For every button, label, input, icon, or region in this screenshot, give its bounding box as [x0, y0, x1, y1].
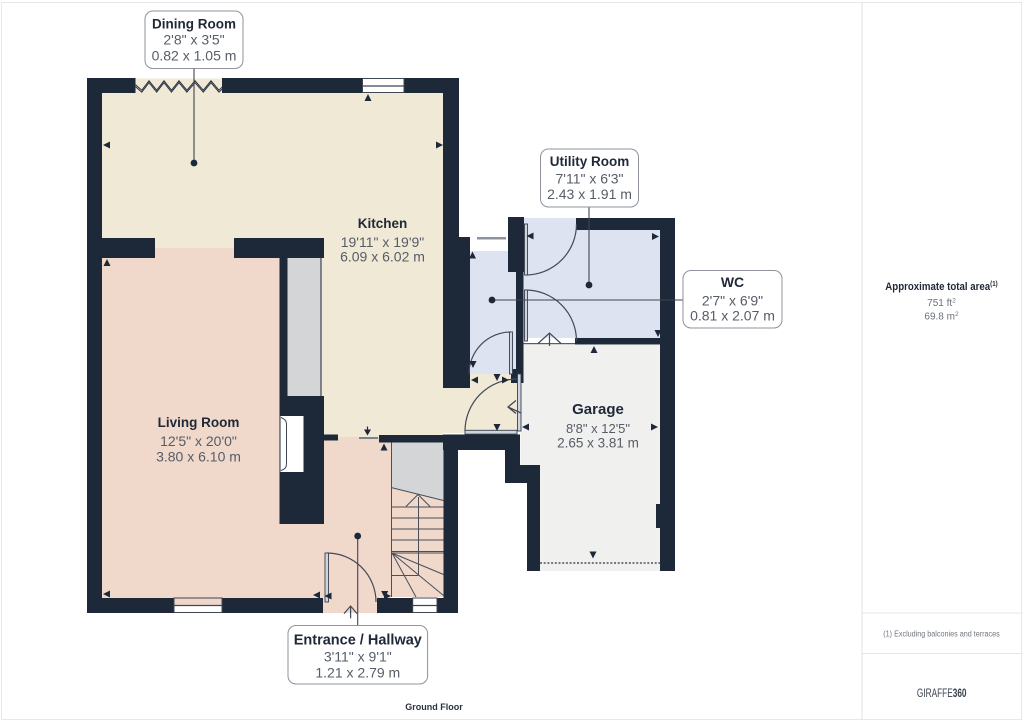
- svg-text:3.80 x 6.10 m: 3.80 x 6.10 m: [156, 449, 241, 465]
- svg-text:(1) Excluding balconies and te: (1) Excluding balconies and terraces: [883, 629, 1000, 638]
- svg-text:GIRAFFE360: GIRAFFE360: [917, 688, 967, 701]
- svg-text:Kitchen: Kitchen: [358, 216, 408, 231]
- svg-text:6.09 x 6.02 m: 6.09 x 6.02 m: [340, 249, 425, 265]
- svg-text:69.8 m2: 69.8 m2: [924, 311, 959, 323]
- svg-text:751 ft2: 751 ft2: [927, 298, 956, 310]
- svg-text:2.65 x 3.81 m: 2.65 x 3.81 m: [557, 436, 639, 451]
- svg-text:2'8" x 3'5": 2'8" x 3'5": [163, 32, 224, 48]
- svg-text:1.21 x 2.79 m: 1.21 x 2.79 m: [315, 665, 400, 681]
- svg-text:7'11" x 6'3": 7'11" x 6'3": [556, 171, 624, 187]
- svg-text:3'11" x 9'1": 3'11" x 9'1": [324, 649, 392, 665]
- svg-text:Dining Room: Dining Room: [152, 17, 236, 32]
- svg-text:0.81 x 2.07 m: 0.81 x 2.07 m: [690, 308, 775, 324]
- svg-text:Ground Floor: Ground Floor: [405, 702, 463, 712]
- svg-text:2'7" x 6'9": 2'7" x 6'9": [702, 292, 763, 308]
- svg-text:2.43 x 1.91 m: 2.43 x 1.91 m: [547, 186, 632, 202]
- svg-text:Approximate total area(1): Approximate total area(1): [885, 281, 997, 293]
- svg-text:Entrance / Hallway: Entrance / Hallway: [294, 633, 422, 649]
- svg-text:Utility Room: Utility Room: [550, 154, 630, 169]
- svg-text:0.82 x 1.05 m: 0.82 x 1.05 m: [152, 48, 237, 64]
- svg-text:8'8" x 12'5": 8'8" x 12'5": [566, 421, 630, 436]
- svg-text:Living Room: Living Room: [158, 415, 240, 430]
- svg-text:WC: WC: [721, 274, 744, 290]
- svg-text:Garage: Garage: [572, 401, 624, 418]
- svg-text:12'5" x 20'0": 12'5" x 20'0": [160, 433, 237, 449]
